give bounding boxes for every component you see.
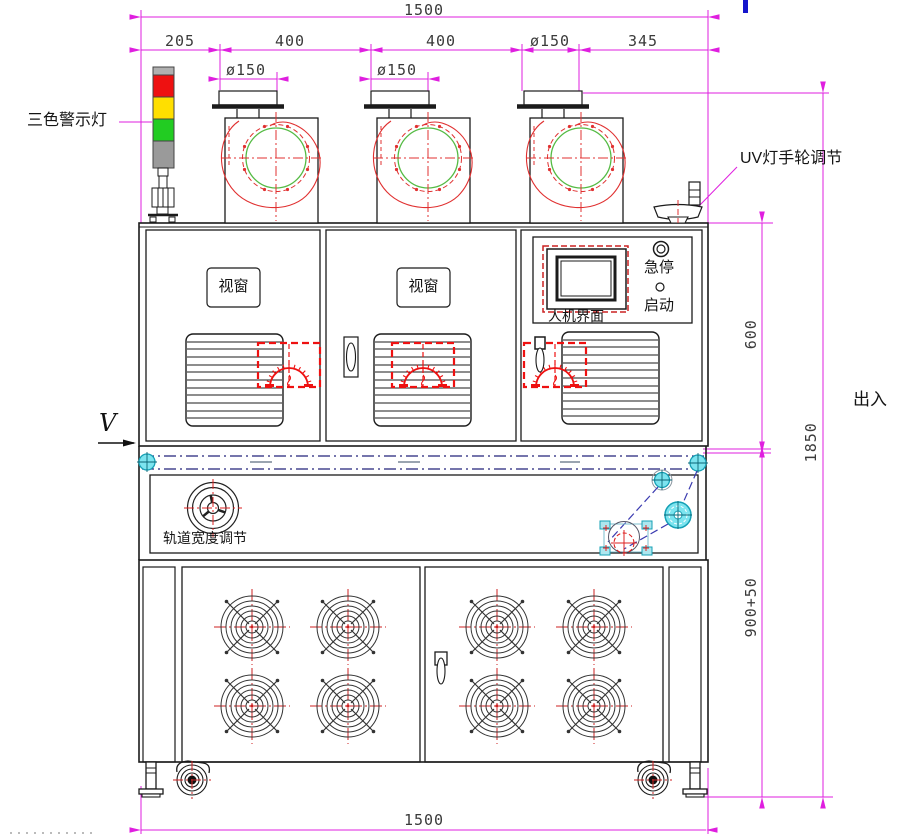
caster-wheel-left [173,761,211,799]
bottom-door-right [425,567,663,762]
tricolor-warning-light [148,67,178,222]
cooling-fan-3 [459,589,535,665]
exhaust-blower-2 [364,91,474,223]
dim-205: 205 [150,33,210,50]
dim-blower1-150: ø150 [215,62,277,79]
dim-blower2-150: ø150 [366,62,428,79]
drive-motor [600,521,652,556]
label-uv-handwheel: UV灯手轮调节 [740,150,842,168]
bottom-door-handle [435,652,447,684]
cooling-fan-7 [459,668,535,744]
bottom-door-left [182,567,420,762]
dim-top-total: 1500 [384,2,464,19]
dim-900-50: 900+50 [743,562,760,652]
warning-light-green-segment [153,119,174,141]
dim-chain-150: ø150 [519,33,581,50]
leveling-foot-right [683,762,707,797]
leveling-foot-left [139,762,163,797]
cooling-fan-5 [214,668,290,744]
warning-light-yellow-segment [153,97,174,119]
dim-345: 345 [613,33,673,50]
label-view-v: V [99,410,116,436]
uv-lamp-handwheel [654,182,702,223]
bottom-cabinet [139,560,708,762]
dim-400-b: 400 [411,33,471,50]
cooling-fan-1 [214,589,290,665]
blue-cursor-artifact [743,0,748,13]
door-handle-panel-3 [535,337,545,372]
exhaust-blower-1 [212,91,322,223]
caster-wheel-right [634,761,672,799]
label-tricolor-light: 三色警示灯 [27,112,107,130]
dim-600: 600 [743,294,760,374]
track-width-handwheel[interactable] [184,479,242,537]
label-in-out: 出入 [853,391,887,410]
exhaust-blower-3 [517,91,627,223]
cooling-fan-4 [556,589,632,665]
cooling-fan-2 [310,589,386,665]
label-window-2: 视窗 [397,279,450,296]
label-start: 启动 [644,298,674,315]
leader-uv-handwheel [699,167,737,206]
conveyor-track-lines [142,456,705,469]
drawing-linework [0,0,901,836]
label-track-width: 轨道宽度调节 [163,531,247,546]
cooling-fan-6 [310,668,386,744]
label-hmi: 人机界面 [548,309,604,324]
door-handle-panel-2 [344,337,358,377]
dim-1850: 1850 [803,402,820,482]
view-direction-arrow [98,440,136,447]
cooling-fan-8 [556,668,632,744]
warning-light-red-segment [153,75,174,97]
dim-bottom-total: 1500 [384,812,464,829]
dim-400-a: 400 [260,33,320,50]
machine-drawing: 1500 205 400 400 ø150 345 ø150 ø150 600 … [0,0,901,836]
label-estop: 急停 [644,260,674,277]
label-window-1: 视窗 [207,279,260,296]
